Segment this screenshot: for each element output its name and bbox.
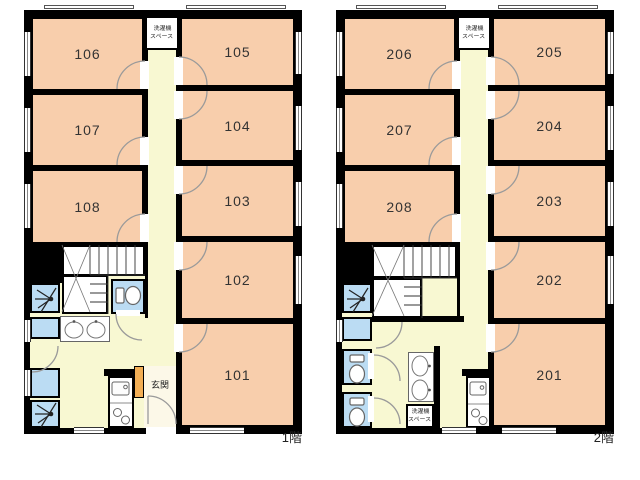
toilet-room — [111, 279, 145, 314]
room-204-label: 204 — [536, 118, 562, 134]
shower-room — [342, 283, 372, 313]
window-icon — [24, 370, 31, 396]
room-206-label: 206 — [386, 46, 412, 62]
room-102: 102 — [179, 239, 296, 321]
room-207-label: 207 — [386, 122, 412, 138]
wall-block — [342, 245, 372, 283]
window-icon — [74, 427, 104, 434]
floorplan-2f: 206 207 208 205 204 203 202 201 — [336, 10, 614, 434]
entrance-label: 玄関 — [151, 378, 169, 391]
utility-box-upper — [30, 317, 60, 339]
shower-room-upper — [30, 283, 60, 313]
window-icon — [607, 182, 614, 226]
room-201: 201 — [491, 321, 608, 428]
window-icon — [24, 108, 31, 152]
eave-line — [498, 5, 598, 9]
kitchen-wall — [462, 369, 494, 376]
utility-box — [342, 317, 372, 341]
window-icon — [502, 427, 556, 434]
room-102-label: 102 — [224, 272, 250, 288]
room-203: 203 — [491, 163, 608, 239]
laundry-space-label: 洗濯機 — [153, 26, 171, 33]
window-icon — [295, 106, 302, 150]
laundry-space-2f-bottom: 洗濯機 スペース — [406, 404, 434, 428]
entrance-door-opening — [146, 427, 176, 434]
eave-line — [44, 5, 134, 9]
floorplan-1f: 106 107 108 105 104 103 102 101 玄関 — [24, 10, 302, 434]
washbasin-counter — [60, 316, 110, 342]
window-icon — [336, 108, 343, 152]
room-108: 108 — [30, 168, 145, 245]
wall-block — [30, 245, 62, 283]
window-icon — [24, 32, 31, 76]
window-icon — [442, 427, 476, 434]
window-icon — [190, 427, 244, 434]
washbasin-counter — [408, 352, 434, 402]
window-icon — [295, 256, 302, 304]
room-103-label: 103 — [224, 193, 250, 209]
window-icon — [336, 184, 343, 228]
room-206: 206 — [342, 16, 457, 92]
room-105: 105 — [179, 16, 296, 88]
window-icon — [336, 320, 343, 342]
laundry-space-label: 洗濯機 — [411, 409, 429, 416]
room-201-label: 201 — [536, 367, 562, 383]
floor-2-caption: 2階 — [562, 427, 614, 446]
corridor-right-wall — [488, 16, 491, 428]
staircase-lower-run — [372, 278, 422, 318]
room-101: 101 — [179, 321, 296, 428]
kitchen-unit — [108, 376, 134, 428]
room-101-label: 101 — [224, 367, 250, 383]
eave-line — [356, 5, 446, 9]
floor-1-caption: 1階 — [250, 427, 302, 446]
room-103: 103 — [179, 163, 296, 239]
room-202-label: 202 — [536, 272, 562, 288]
window-icon — [336, 32, 343, 76]
corridor-right-wall — [176, 16, 179, 428]
room-107-label: 107 — [74, 122, 100, 138]
utility-box-lower — [30, 368, 60, 398]
room-104: 104 — [179, 88, 296, 163]
window-icon — [607, 256, 614, 304]
laundry-space-label: スペース — [462, 34, 485, 41]
room-104-label: 104 — [224, 118, 250, 134]
basin-wall — [434, 346, 440, 428]
room-107: 107 — [30, 92, 145, 168]
room-203-label: 203 — [536, 193, 562, 209]
room-106-label: 106 — [74, 46, 100, 62]
room-108-label: 108 — [74, 199, 100, 215]
room-202: 202 — [491, 239, 608, 321]
staircase-lower-run — [62, 275, 108, 314]
floorplan-canvas: 106 107 108 105 104 103 102 101 玄関 — [0, 0, 640, 480]
room-204: 204 — [491, 88, 608, 163]
corridor-1f — [145, 16, 179, 368]
room-106: 106 — [30, 16, 145, 92]
eave-line — [186, 5, 286, 9]
window-icon — [24, 184, 31, 228]
corridor-left-wall — [145, 16, 148, 318]
kitchen-unit — [466, 376, 491, 428]
room-105-label: 105 — [224, 44, 250, 60]
room-208: 208 — [342, 168, 457, 245]
room-207: 207 — [342, 92, 457, 168]
kitchen-wall — [104, 369, 138, 376]
window-icon — [295, 182, 302, 226]
staircase-upper-run — [372, 245, 457, 278]
laundry-space-label: スペース — [408, 417, 431, 424]
toilet-room-upper — [342, 349, 372, 385]
entrance-hall: 玄関 — [144, 366, 176, 428]
staircase-upper-run — [62, 245, 145, 276]
stair-hall-wall — [372, 316, 464, 322]
room-205-label: 205 — [536, 44, 562, 60]
window-icon — [295, 32, 302, 74]
room-208-label: 208 — [386, 199, 412, 215]
window-icon — [24, 320, 31, 342]
laundry-space-1f: 洗濯機 スペース — [145, 16, 179, 50]
room-205: 205 — [491, 16, 608, 88]
window-icon — [607, 106, 614, 150]
corridor-left-wall — [457, 16, 460, 318]
toilet-room-lower — [342, 392, 372, 428]
shower-room-lower — [30, 400, 60, 428]
laundry-space-2f-top: 洗濯機 スペース — [457, 16, 491, 50]
laundry-space-label: スペース — [150, 34, 173, 41]
laundry-space-label: 洗濯機 — [465, 26, 483, 33]
shoe-cabinet — [134, 366, 144, 398]
window-icon — [607, 32, 614, 74]
